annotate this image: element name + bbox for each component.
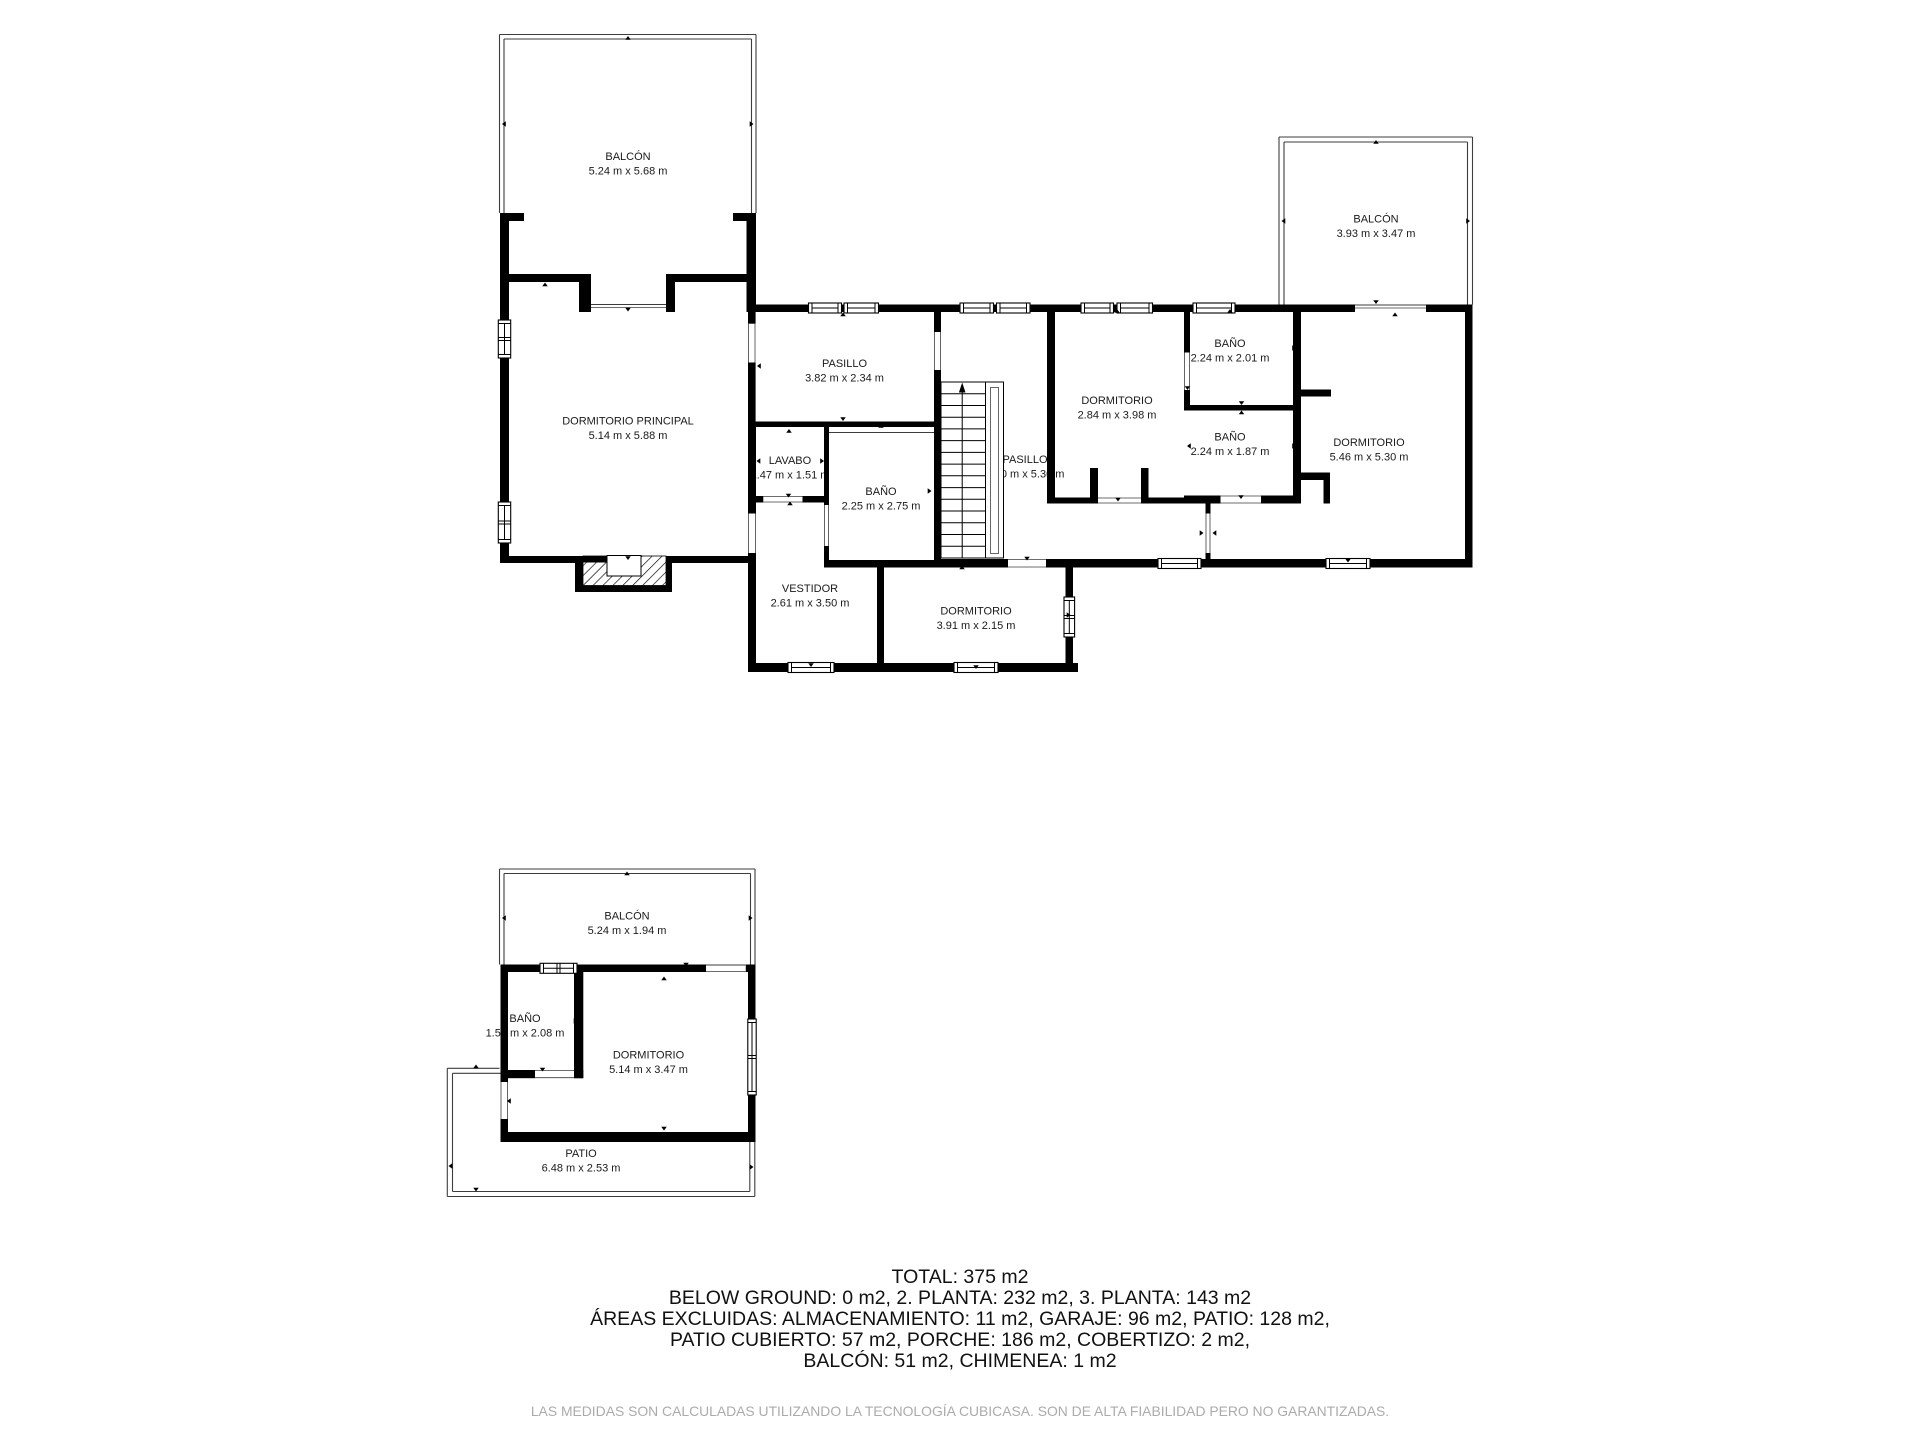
svg-text:3.91 m x 2.15 m: 3.91 m x 2.15 m	[937, 620, 1016, 632]
svg-text:BALCÓN: BALCÓN	[604, 910, 649, 923]
svg-text:VESTIDOR: VESTIDOR	[782, 583, 838, 595]
svg-text:BAÑO: BAÑO	[509, 1012, 541, 1025]
svg-text:1.47 m x 1.51 m: 1.47 m x 1.51 m	[751, 470, 830, 482]
svg-text:6.48 m x 2.53 m: 6.48 m x 2.53 m	[542, 1163, 621, 1175]
svg-text:1.52 m x 2.08 m: 1.52 m x 2.08 m	[486, 1028, 565, 1040]
svg-text:BALCÓN: BALCÓN	[1353, 213, 1398, 226]
svg-text:DORMITORIO: DORMITORIO	[1081, 395, 1153, 407]
svg-text:DORMITORIO: DORMITORIO	[613, 1050, 685, 1062]
svg-text:BAÑO: BAÑO	[1214, 337, 1246, 350]
svg-text:BELOW GROUND: 0 m2, 2. PLANTA:: BELOW GROUND: 0 m2, 2. PLANTA: 232 m2, 3…	[669, 1287, 1251, 1309]
svg-text:5.46 m x 5.30 m: 5.46 m x 5.30 m	[1330, 452, 1409, 464]
svg-text:DORMITORIO: DORMITORIO	[940, 606, 1012, 618]
svg-text:2.25 m x 2.75 m: 2.25 m x 2.75 m	[842, 501, 921, 513]
svg-text:2.24 m x 1.87 m: 2.24 m x 1.87 m	[1191, 446, 1270, 458]
svg-text:ÁREAS EXCLUIDAS: ALMACENAMIENT: ÁREAS EXCLUIDAS: ALMACENAMIENTO: 11 m2, …	[590, 1307, 1330, 1330]
svg-text:DORMITORIO PRINCIPAL: DORMITORIO PRINCIPAL	[562, 416, 694, 428]
svg-text:5.24 m x 5.68 m: 5.24 m x 5.68 m	[589, 166, 668, 178]
svg-text:PATIO CUBIERTO: 57 m2, PORCHE:: PATIO CUBIERTO: 57 m2, PORCHE: 186 m2, C…	[670, 1329, 1250, 1351]
svg-text:BALCÓN: BALCÓN	[605, 150, 650, 163]
svg-text:5.14 m x 3.47 m: 5.14 m x 3.47 m	[609, 1064, 688, 1076]
svg-text:5.14 m x 5.88 m: 5.14 m x 5.88 m	[589, 430, 668, 442]
svg-text:PATIO: PATIO	[565, 1148, 597, 1160]
svg-text:2.61 m x 3.50 m: 2.61 m x 3.50 m	[771, 598, 850, 610]
svg-text:2.24 m x 2.01 m: 2.24 m x 2.01 m	[1191, 353, 1270, 365]
svg-text:LAVABO: LAVABO	[769, 455, 812, 467]
svg-text:BAÑO: BAÑO	[1214, 431, 1246, 444]
svg-text:5.24 m x 1.94 m: 5.24 m x 1.94 m	[588, 925, 667, 937]
svg-text:TOTAL: 375 m2: TOTAL: 375 m2	[892, 1266, 1029, 1288]
svg-text:DORMITORIO: DORMITORIO	[1333, 437, 1405, 449]
svg-text:BAÑO: BAÑO	[865, 485, 897, 498]
svg-text:PASILLO: PASILLO	[1002, 454, 1047, 466]
svg-text:3.93 m x 3.47 m: 3.93 m x 3.47 m	[1337, 228, 1416, 240]
svg-text:BALCÓN: 51 m2, CHIMENEA: 1 m2: BALCÓN: 51 m2, CHIMENEA: 1 m2	[803, 1349, 1116, 1372]
svg-text:3.82 m x 2.34 m: 3.82 m x 2.34 m	[805, 373, 884, 385]
svg-text:PASILLO: PASILLO	[822, 358, 867, 370]
svg-text:LAS MEDIDAS SON CALCULADAS UTI: LAS MEDIDAS SON CALCULADAS UTILIZANDO LA…	[531, 1403, 1389, 1419]
svg-text:2.84 m x 3.98 m: 2.84 m x 3.98 m	[1078, 410, 1157, 422]
